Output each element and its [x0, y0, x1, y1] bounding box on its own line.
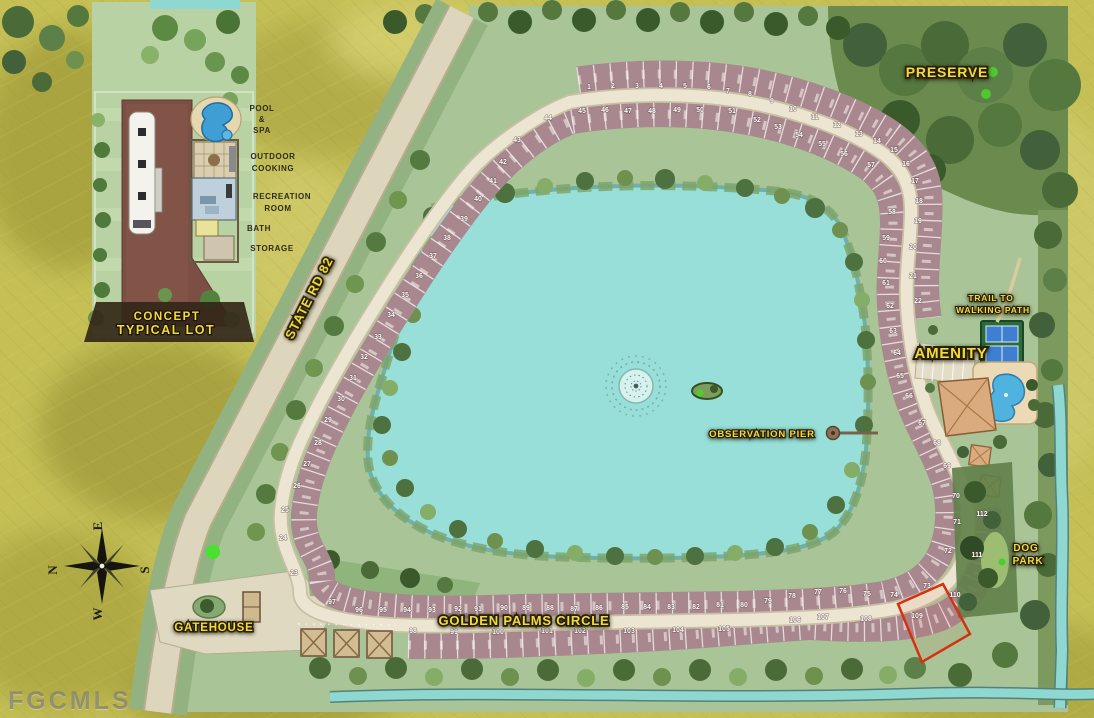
lot-number-110: 110	[949, 592, 960, 599]
lot-number-87: 87	[570, 606, 578, 613]
compass-letter-n: N	[45, 565, 60, 575]
lot-number-38: 38	[443, 235, 451, 242]
compass-letter-e: E	[90, 522, 105, 531]
lot-number-69: 69	[943, 463, 951, 470]
lot-number-34: 34	[387, 312, 395, 319]
lot-number-58: 58	[888, 209, 896, 216]
lot-number-76: 76	[839, 588, 847, 595]
site-plan-map: ENSW	[0, 0, 1094, 718]
lot-number-41: 41	[489, 178, 497, 185]
lot-number-29: 29	[324, 417, 332, 424]
map-canvas: ENSW	[0, 0, 1094, 718]
fgcmls-watermark: FGCMLS	[8, 687, 132, 716]
lot-number-2: 2	[611, 83, 615, 90]
lot-number-61: 61	[882, 280, 890, 287]
inset-label-outdoor: OUTDOOR	[250, 152, 295, 161]
map-label-amenity: AMENITY	[914, 345, 987, 362]
lot-number-112: 112	[976, 511, 987, 518]
lot-number-51: 51	[728, 108, 736, 115]
lot-number-26: 26	[293, 483, 301, 490]
lot-number-98: 98	[409, 628, 417, 635]
lot-number-88: 88	[546, 605, 554, 612]
lot-number-97: 97	[328, 599, 336, 606]
inset-label-recreation: RECREATION	[253, 192, 311, 201]
lot-number-28: 28	[314, 440, 322, 447]
lot-number-47: 47	[624, 108, 632, 115]
inset-label-pool: POOL	[249, 104, 274, 113]
lot-number-17: 17	[911, 178, 919, 185]
inset-title-line1: CONCEPT	[134, 311, 201, 323]
lot-number-78: 78	[788, 593, 796, 600]
lot-number-25: 25	[281, 507, 289, 514]
lot-number-4: 4	[659, 83, 663, 90]
lot-number-82: 82	[692, 604, 700, 611]
lot-number-50: 50	[696, 107, 704, 114]
lot-number-104: 104	[672, 627, 684, 634]
lot-number-14: 14	[873, 138, 881, 145]
lot-number-3: 3	[635, 83, 639, 90]
lot-number-105: 105	[718, 626, 730, 633]
lot-number-21: 21	[909, 273, 917, 280]
lot-number-102: 102	[574, 628, 586, 635]
inset-title-line2: TYPICAL LOT	[117, 323, 215, 337]
lot-number-54: 54	[795, 132, 803, 139]
lot-number-8: 8	[748, 91, 752, 98]
lot-number-96: 96	[355, 607, 363, 614]
map-label-park: PARK	[1013, 556, 1044, 567]
lot-number-53: 53	[774, 124, 782, 131]
lot-number-75: 75	[863, 591, 871, 598]
lot-number-67: 67	[918, 420, 926, 427]
lot-number-84: 84	[643, 604, 651, 611]
lot-number-33: 33	[374, 334, 382, 341]
lot-number-60: 60	[879, 258, 887, 265]
lot-number-111: 111	[972, 552, 983, 559]
lot-number-63: 63	[889, 328, 897, 335]
lot-number-94: 94	[403, 607, 411, 614]
inset-label-bath: BATH	[247, 224, 271, 233]
lot-number-107: 107	[817, 614, 829, 621]
lot-number-65: 65	[896, 373, 904, 380]
lot-number-66: 66	[905, 393, 913, 400]
inset-label-spa: SPA	[253, 126, 271, 135]
lot-number-55: 55	[818, 141, 826, 148]
lot-number-36: 36	[415, 273, 423, 280]
lot-number-59: 59	[882, 235, 890, 242]
lot-number-13: 13	[855, 131, 863, 138]
lot-number-7: 7	[726, 88, 730, 95]
map-label-dog: DOG	[1013, 543, 1038, 554]
inset-pool-spa	[191, 97, 241, 141]
lot-number-40: 40	[474, 196, 482, 203]
map-label-gatehouse: GATEHOUSE	[174, 622, 253, 634]
lot-number-24: 24	[279, 535, 287, 542]
compass-letter-s: S	[137, 566, 152, 573]
lot-number-30: 30	[337, 396, 345, 403]
lot-number-20: 20	[909, 244, 917, 251]
lot-number-1: 1	[587, 84, 591, 91]
lot-number-52: 52	[753, 117, 761, 124]
lot-number-77: 77	[814, 589, 822, 596]
lot-number-43: 43	[513, 137, 521, 144]
lot-number-5: 5	[683, 83, 687, 90]
map-label-walking-path: WALKING PATH	[956, 305, 1030, 315]
lot-number-68: 68	[933, 440, 941, 447]
lot-number-103: 103	[623, 628, 635, 635]
compass-letter-w: W	[90, 608, 105, 621]
lot-number-15: 15	[890, 147, 898, 154]
lot-number-100: 100	[492, 629, 504, 636]
lot-number-93: 93	[428, 607, 436, 614]
lot-number-99: 99	[450, 629, 458, 636]
lot-number-11: 11	[811, 114, 819, 121]
lot-number-64: 64	[893, 350, 901, 357]
lot-number-70: 70	[952, 493, 960, 500]
lot-number-72: 72	[944, 548, 952, 555]
lot-number-80: 80	[740, 602, 748, 609]
lot-number-32: 32	[360, 354, 368, 361]
lot-number-85: 85	[621, 604, 629, 611]
lot-number-37: 37	[429, 253, 437, 260]
lot-number-6: 6	[707, 84, 711, 91]
lot-number-16: 16	[902, 161, 910, 168]
lot-number-92: 92	[454, 606, 462, 613]
lot-number-95: 95	[379, 607, 387, 614]
lot-number-56: 56	[840, 151, 848, 158]
lot-number-18: 18	[915, 198, 923, 205]
map-label-golden-palms-circle: GOLDEN PALMS CIRCLE	[439, 613, 610, 628]
clubhouse	[938, 378, 996, 436]
lot-number-9: 9	[770, 98, 774, 105]
map-label-preserve: PRESERVE	[906, 64, 988, 80]
lot-number-48: 48	[648, 108, 656, 115]
lot-number-27: 27	[303, 461, 311, 468]
lot-number-10: 10	[789, 106, 797, 113]
lot-number-45: 45	[578, 108, 586, 115]
lot-number-23: 23	[290, 570, 298, 577]
lot-number-31: 31	[349, 375, 357, 382]
inset-label-: &	[259, 115, 265, 124]
lot-number-35: 35	[401, 292, 409, 299]
inset-label-cooking: COOKING	[252, 164, 294, 173]
lot-number-101: 101	[541, 628, 553, 635]
lot-number-83: 83	[667, 604, 675, 611]
lot-number-108: 108	[860, 616, 872, 623]
lot-number-91: 91	[474, 606, 482, 613]
lot-number-86: 86	[595, 605, 603, 612]
lot-number-39: 39	[460, 216, 468, 223]
inset-label-room: ROOM	[264, 204, 291, 213]
lot-number-57: 57	[867, 162, 875, 169]
map-label-observation-pier: OBSERVATION PIER	[709, 429, 815, 440]
map-label-trail-to: TRAIL TO	[968, 293, 1013, 303]
lot-number-81: 81	[716, 602, 724, 609]
lot-number-71: 71	[953, 519, 961, 526]
lot-number-49: 49	[673, 107, 681, 114]
lot-number-89: 89	[522, 605, 530, 612]
inset-label-storage: STORAGE	[250, 244, 294, 253]
lot-number-106: 106	[789, 617, 801, 624]
lot-number-12: 12	[833, 122, 841, 129]
lot-number-44: 44	[544, 115, 552, 122]
lot-number-62: 62	[886, 303, 894, 310]
lot-number-74: 74	[890, 592, 898, 599]
lot-number-19: 19	[914, 218, 922, 225]
dog-park	[952, 462, 1018, 618]
lot-number-73: 73	[923, 583, 931, 590]
lot-number-79: 79	[764, 598, 772, 605]
lot-number-46: 46	[601, 107, 609, 114]
lot-number-22: 22	[914, 298, 922, 305]
lot-number-109: 109	[911, 613, 923, 620]
lot-number-90: 90	[500, 605, 508, 612]
lot-number-42: 42	[499, 159, 507, 166]
lake-island	[692, 383, 722, 399]
